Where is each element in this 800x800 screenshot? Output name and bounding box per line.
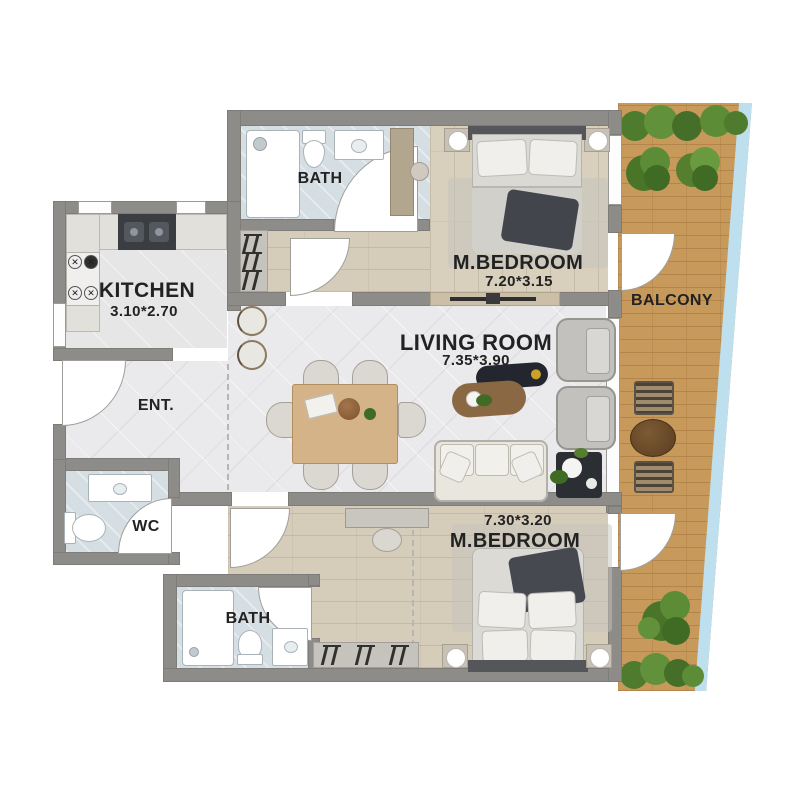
stool [410,162,429,181]
sink [334,130,384,160]
wall [53,458,180,471]
wall [608,205,622,233]
room-dims: 7.30*3.20 [484,512,552,529]
balcony-area [618,103,754,691]
side-chair [237,340,267,370]
shower-tub [246,130,300,218]
stove [66,252,100,306]
wall [168,458,180,498]
stool [372,528,402,552]
greenery-icon [672,111,702,141]
room-label: BATH [226,610,271,628]
wall [227,292,286,306]
sink [88,474,152,502]
plant-icon [550,470,568,484]
room-label: BALCONY [631,292,713,310]
bathtub [182,590,234,666]
plant-icon [638,591,696,651]
floor-plan: M.BEDROOM 7.20*3.15 [0,0,800,800]
kitchen-window [78,201,112,214]
greenery-icon [620,651,706,691]
kitchen-window [176,201,206,214]
toilet [72,514,106,542]
throw-blanket [500,189,579,252]
wall [308,574,320,586]
bed [468,660,588,672]
room-dims: 3.10*2.70 [110,303,178,320]
bed [472,134,582,252]
room-label: M.BEDROOM [453,252,583,275]
wall [608,110,622,135]
wall [163,574,320,587]
bowl [338,398,360,420]
dining-table [292,384,398,464]
room-label: M.BEDROOM [450,530,580,553]
room-label: BATH [298,170,343,188]
balcony-round-table [630,419,676,457]
balcony-chair [634,461,674,493]
wall [227,110,622,126]
room-label: WC [132,518,159,536]
side-table [556,452,602,498]
desk [345,508,429,528]
kitchen-window [53,303,66,347]
plant-icon [676,147,720,197]
kitchen-sink [118,214,176,250]
tv-icon [486,293,500,304]
lamp-icon [446,648,466,668]
plant-icon [626,147,670,197]
closet-hangers [313,642,419,668]
balcony-chair [634,381,674,415]
room-label: KITCHEN [99,279,195,303]
ent-living-boundary [227,364,229,490]
lamp-icon [448,131,468,151]
toilet [237,654,263,665]
coffee-table [451,379,527,418]
bed [472,548,584,666]
side-chair [237,306,267,336]
dining-chair [266,402,294,438]
wall [163,574,177,682]
plant-icon [476,394,493,407]
wall [53,424,66,460]
room-dims: 7.20*3.15 [485,273,553,290]
sofa [434,440,548,502]
sink [272,628,308,666]
armchair [556,318,616,382]
armchair [556,386,616,450]
bedroom-hall-boundary [412,530,414,646]
room-label: ENT. [138,397,174,415]
shower-head-icon [253,137,267,151]
plant-icon [364,408,376,420]
wall [608,290,622,318]
lamp-icon [588,131,608,151]
greenery-icon [724,111,748,135]
lamp-icon [590,648,610,668]
plant-icon [574,448,588,458]
closet-hangers [240,230,268,292]
room-dims: 7.35*3.90 [442,352,510,369]
bedroom-top-window [608,135,622,205]
